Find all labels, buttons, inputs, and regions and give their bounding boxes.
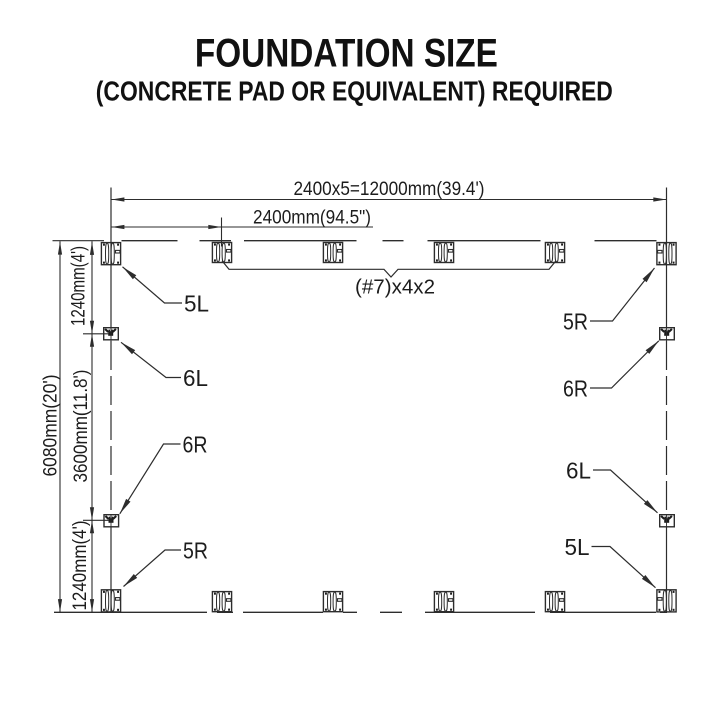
svg-text:6R: 6R xyxy=(183,432,208,458)
svg-text:6L: 6L xyxy=(183,365,208,391)
svg-text:6080mm(20'): 6080mm(20') xyxy=(41,375,62,477)
svg-text:2400mm(94.5"): 2400mm(94.5") xyxy=(253,208,371,229)
svg-text:(#7)x4x2: (#7)x4x2 xyxy=(355,277,435,299)
svg-text:6L: 6L xyxy=(566,458,591,484)
svg-text:5L: 5L xyxy=(565,534,590,560)
svg-text:6R: 6R xyxy=(563,376,588,402)
svg-text:5R: 5R xyxy=(563,309,588,335)
svg-text:1240mm(4'): 1240mm(4') xyxy=(69,246,90,326)
svg-text:(CONCRETE PAD OR EQUIVALENT) R: (CONCRETE PAD OR EQUIVALENT) REQUIRED xyxy=(96,76,613,107)
svg-text:2400x5=12000mm(39.4'): 2400x5=12000mm(39.4') xyxy=(294,179,485,200)
svg-text:5R: 5R xyxy=(183,538,208,564)
svg-text:1240mm(4'): 1240mm(4') xyxy=(70,521,91,611)
svg-text:FOUNDATION SIZE: FOUNDATION SIZE xyxy=(195,32,498,76)
svg-text:3600mm(11.8'): 3600mm(11.8') xyxy=(71,370,92,483)
svg-text:5L: 5L xyxy=(184,291,209,317)
